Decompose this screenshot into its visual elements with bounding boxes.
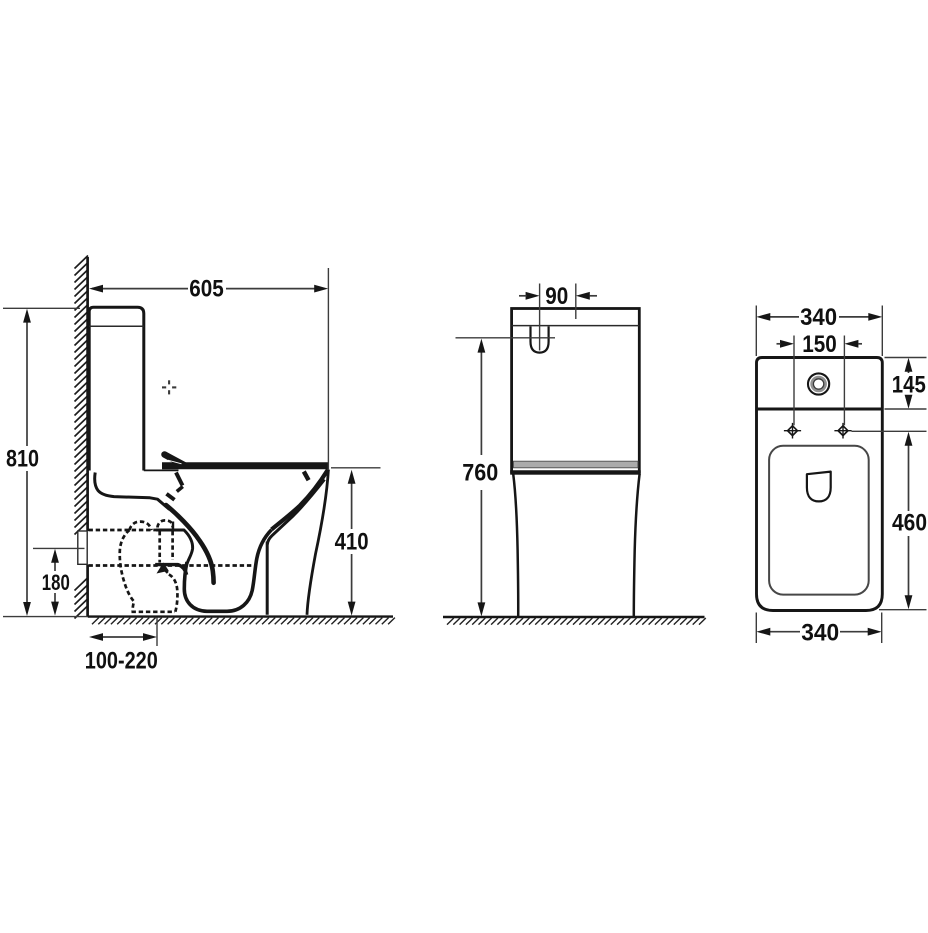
svg-text:760: 760 [462,460,498,487]
svg-text:810: 810 [6,446,39,473]
svg-text:90: 90 [545,283,568,310]
svg-text:340: 340 [801,619,839,646]
svg-text:410: 410 [335,529,369,556]
svg-text:605: 605 [189,276,224,303]
svg-text:150: 150 [802,331,837,358]
svg-text:340: 340 [800,304,837,331]
svg-text:145: 145 [892,371,926,398]
svg-text:100-220: 100-220 [85,648,158,675]
svg-text:460: 460 [892,510,927,537]
svg-text:180: 180 [42,570,70,595]
